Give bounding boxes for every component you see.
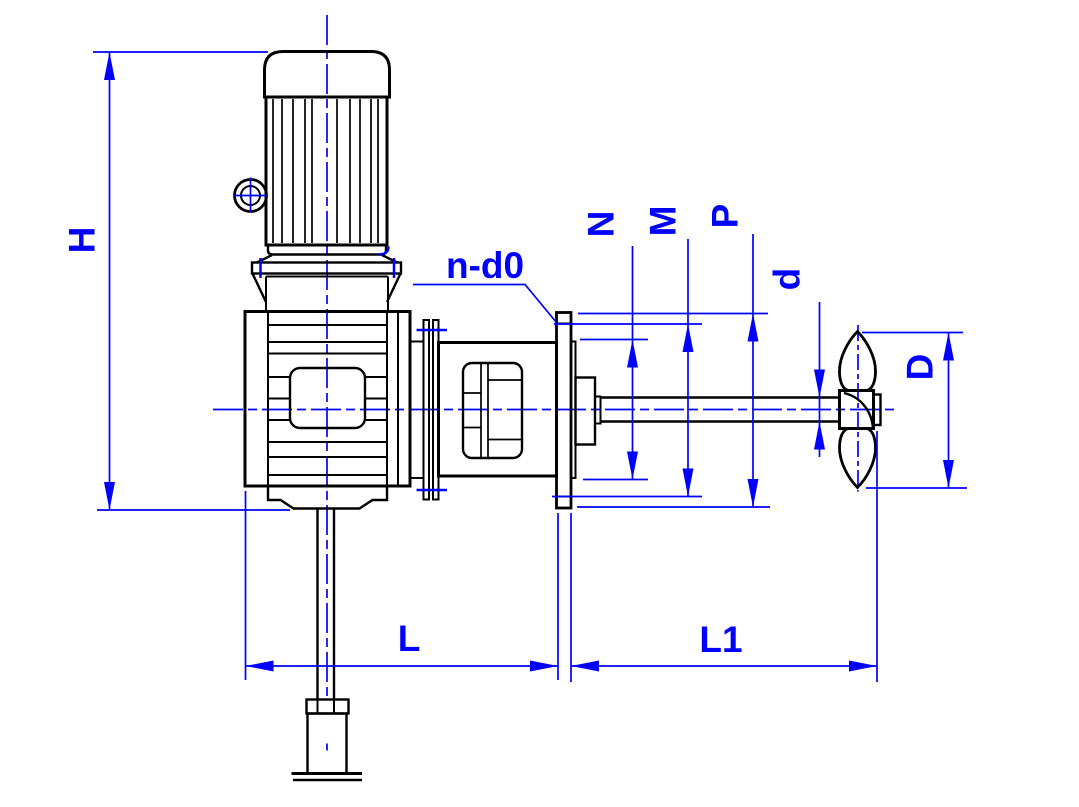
dimension-P: P [577,204,770,507]
dimension-L: L [246,491,559,680]
lantern-window [463,363,522,458]
dim-label-L: L [398,618,421,659]
callout-bolt-pattern: n-d0 [413,245,557,323]
eyebolt [234,178,269,213]
callout-label-n-d0: n-d0 [446,245,524,286]
dim-label-M: M [643,206,684,237]
dim-label-P: P [705,204,746,229]
dim-label-D: D [900,354,941,381]
mixer-dimension-drawing: H L L1 N M P d [0,0,1079,807]
dim-label-H: H [62,227,103,254]
dimension-L1: L1 [571,431,877,682]
dim-label-L1: L1 [699,619,742,660]
technical-drawing-page: H L L1 N M P d [0,0,1079,807]
dim-label-d: d [767,268,808,291]
motor-fins [273,99,378,243]
dimension-d: d [767,268,826,457]
dimension-N: N [580,211,648,480]
centerlines [213,15,896,751]
dim-label-N: N [581,211,622,238]
motor [234,52,402,312]
